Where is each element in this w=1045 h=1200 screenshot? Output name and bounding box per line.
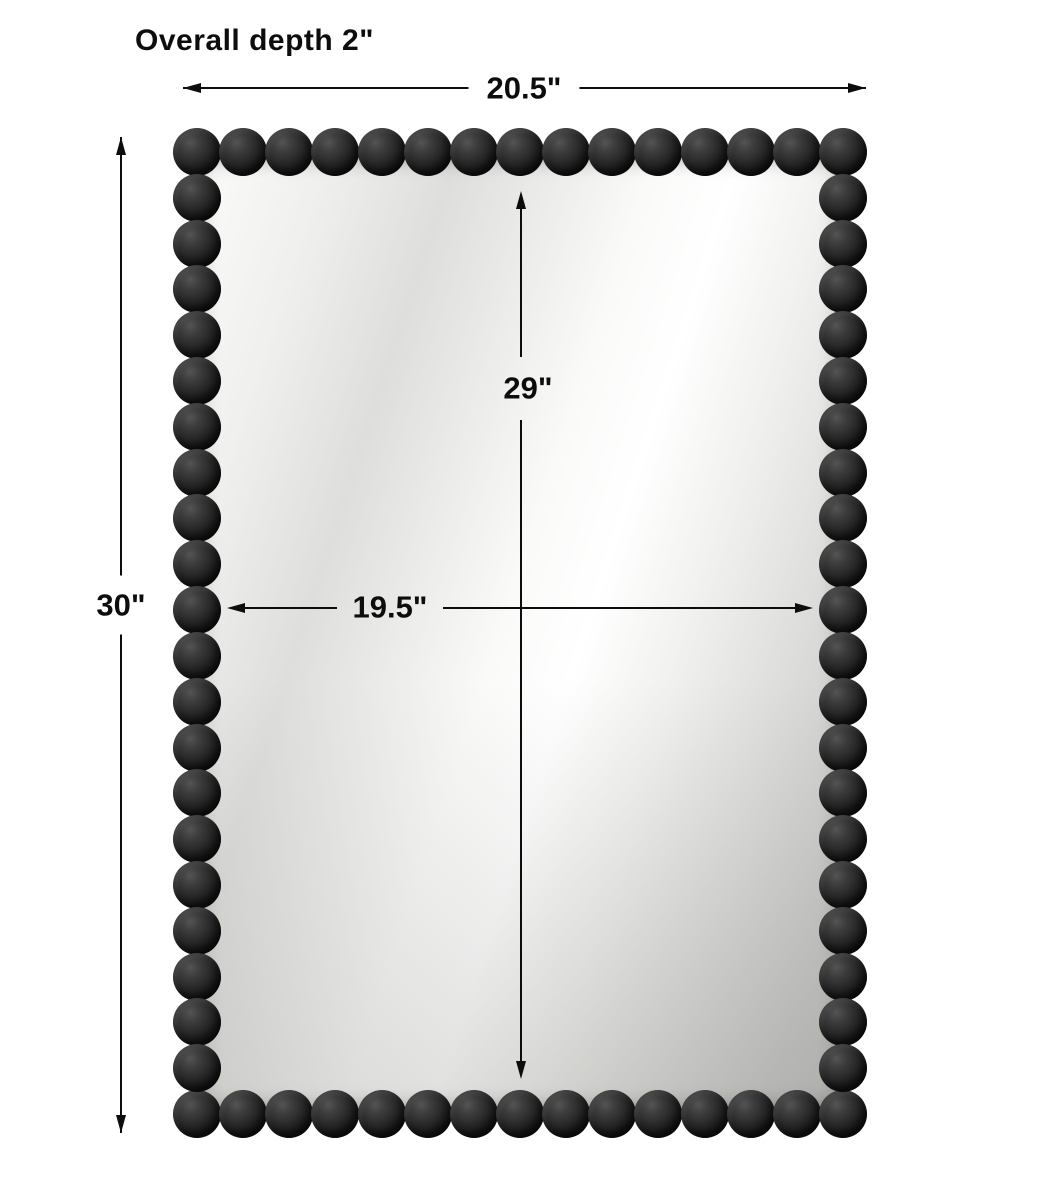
arrow-left-icon: [183, 83, 201, 93]
arrow-right-icon: [795, 603, 813, 613]
depth-note: Overall depth 2": [135, 24, 374, 58]
dim-line-overall-height: [120, 137, 122, 1133]
arrow-right-icon: [848, 83, 866, 93]
dimension-diagram: Overall depth 2" 20.5" 30" 29" 19.5": [0, 0, 1045, 1200]
dim-line-mirror-width-left: [243, 607, 337, 609]
dim-line-mirror-height-upper: [520, 207, 522, 357]
dim-line-mirror-height-lower: [520, 420, 522, 1063]
arrow-down-icon: [116, 1115, 126, 1133]
dim-label-mirror-height: 29": [503, 373, 552, 404]
dim-label-mirror-width: 19.5": [352, 592, 427, 623]
dim-label-overall-height: 30": [92, 576, 149, 635]
arrow-down-icon: [516, 1061, 526, 1079]
dim-label-overall-width: 20.5": [468, 71, 579, 106]
dim-line-mirror-width-right: [443, 607, 797, 609]
arrow-up-icon: [116, 137, 126, 155]
